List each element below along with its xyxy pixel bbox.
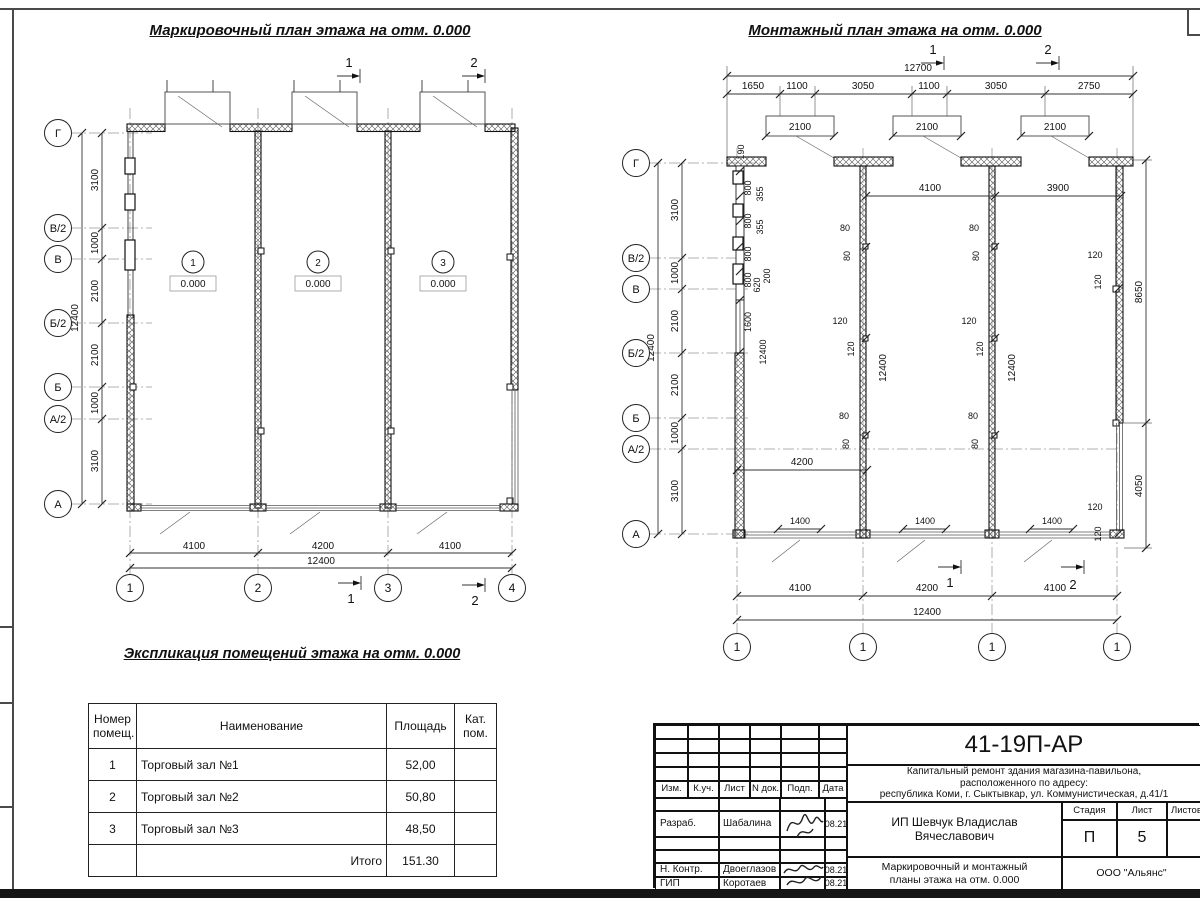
- table-row: 2 Торговый зал №2 50,80: [89, 781, 497, 813]
- inner-dimensions: 4100 3900 4200: [733, 183, 1125, 474]
- dim-label: 12700: [904, 63, 932, 74]
- dim-label: 4200: [791, 457, 814, 468]
- cell-room-number: 2: [89, 781, 137, 813]
- dim-label: 200: [762, 268, 772, 283]
- rooms-table: Номер помещ. Наименование Площадь Кат. п…: [88, 703, 497, 877]
- stage-header: Стадия: [1062, 802, 1117, 820]
- dim-label: 80: [839, 411, 849, 421]
- cell-room-name: Торговый зал №3: [137, 813, 387, 845]
- dim-label: 1400: [915, 516, 935, 526]
- dim-label: 3100: [90, 168, 101, 191]
- right-dimension-chain: 8650 4050: [1124, 156, 1152, 552]
- empty-cell: [655, 798, 719, 811]
- grid-lines: [650, 148, 1117, 633]
- cell-room-name: Торговый зал №2: [137, 781, 387, 813]
- dim-label: 120: [961, 316, 976, 326]
- col-header-category: Кат. пом.: [455, 704, 497, 749]
- dim-label: 190: [736, 144, 746, 159]
- stage-value: П: [1062, 820, 1117, 857]
- th-data: Дата: [819, 781, 847, 798]
- dim-label: 120: [975, 341, 985, 356]
- name-gip: Коротаев: [719, 877, 780, 890]
- date-gip: 08.21: [825, 877, 847, 890]
- axis-label: В/2: [50, 223, 67, 235]
- title-block: Изм. К.уч. Лист N док. Подп. Дата Разраб…: [653, 723, 1199, 888]
- column-label: 2: [255, 581, 262, 595]
- col-header-room-number: Номер помещ.: [89, 704, 137, 749]
- empty-cell: [655, 850, 719, 863]
- date-developer: 08.21: [825, 811, 847, 837]
- total-label: Итого: [137, 845, 387, 877]
- th-kuch: К.уч.: [688, 781, 719, 798]
- bottom-small-dimensions: 1400 1400 1400: [774, 516, 1077, 533]
- dim-label: 12400: [70, 304, 81, 332]
- cell-room-number: 3: [89, 813, 137, 845]
- table-row: 3 Торговый зал №3 48,50: [89, 813, 497, 845]
- date-ncontrol: 08.21: [825, 863, 847, 877]
- frame-tick: [0, 626, 12, 628]
- column-bubbles: 1 2 3 4: [117, 575, 526, 602]
- walls: [727, 157, 1133, 562]
- dim-label: 12400: [913, 607, 941, 618]
- room-number: 2: [315, 258, 321, 269]
- dim-label: 4100: [789, 583, 812, 594]
- dim-label: 120: [1093, 274, 1103, 289]
- dim-label: 2100: [1044, 122, 1067, 133]
- axis-label: А: [54, 499, 62, 511]
- dim-label: 4200: [312, 541, 335, 552]
- column-label: 1: [127, 581, 134, 595]
- total-value: 151.30: [387, 845, 455, 877]
- dim-label: 4050: [1134, 474, 1145, 497]
- section-number: 1: [946, 575, 953, 590]
- th-izm: Изм.: [655, 781, 688, 798]
- room-number: 1: [190, 258, 196, 269]
- dim-label: 355: [755, 186, 765, 201]
- sheets-header: Листов: [1167, 802, 1200, 820]
- sheets-value: [1167, 820, 1200, 857]
- role-ncontrol: Н. Контр.: [655, 863, 719, 877]
- axis-label: В: [54, 254, 61, 266]
- dim-label: 3050: [852, 81, 875, 92]
- dim-label: 2100: [789, 122, 812, 133]
- client-name: ИП Шевчук Владислав Вячеславович: [847, 802, 1062, 857]
- empty-cell: [655, 837, 719, 850]
- room-elevation: 0.000: [430, 279, 455, 290]
- sheet-value: 5: [1117, 820, 1167, 857]
- dim-label: 2100: [670, 309, 681, 332]
- left-dimension-chain: 3100 1000 2100 2100 1000 3100 12400: [70, 129, 106, 508]
- axis-label: В: [632, 284, 639, 296]
- dim-label: 1100: [918, 81, 940, 92]
- column-label: 3: [385, 581, 392, 595]
- cell-empty: [455, 845, 497, 877]
- room-elevation: 0.000: [180, 279, 205, 290]
- column-bubbles: 1 1 1 1: [724, 634, 1131, 661]
- cell-room-area: 48,50: [387, 813, 455, 845]
- dim-label: 4100: [919, 183, 942, 194]
- dim-label: 12400: [1007, 354, 1018, 382]
- bottom-dimension-chain: 4100 4200 4100 12400: [733, 583, 1121, 624]
- section-number: 1: [347, 591, 354, 606]
- dim-label: 3100: [670, 479, 681, 502]
- drawing-title: Маркировочный и монтажный планы этажа на…: [847, 857, 1062, 890]
- axis-label: Б/2: [628, 348, 644, 360]
- dim-label: 4100: [439, 541, 462, 552]
- dim-label: 12400: [878, 354, 889, 382]
- dim-label: 80: [841, 439, 851, 449]
- dim-label: 80: [970, 439, 980, 449]
- room-markers: 1 0.000 2 0.000 3 0.000: [170, 251, 466, 291]
- column-label: 1: [1114, 640, 1121, 654]
- left-plan-title: Маркировочный план этажа на отм. 0.000: [95, 22, 525, 39]
- dim-label: 1000: [90, 391, 101, 414]
- section-marker-2-bottom: 2: [462, 578, 485, 608]
- section-marker-2-top: 2: [1036, 42, 1059, 70]
- dim-label: 1000: [90, 231, 101, 254]
- dim-label: 12400: [307, 556, 335, 567]
- dim-label: 4100: [183, 541, 206, 552]
- frame-left-line: [12, 8, 14, 889]
- company-name: ООО "Альянс": [1062, 857, 1200, 890]
- axis-label: А/2: [628, 444, 645, 456]
- section-number: 1: [345, 55, 352, 70]
- cell-room-area: 50,80: [387, 781, 455, 813]
- name-developer: Шабалина: [719, 811, 780, 837]
- axis-label: А: [632, 529, 640, 541]
- dim-label: 120: [832, 316, 847, 326]
- dim-label: 80: [842, 251, 852, 261]
- top-dimension-chain: 12700 1650 1100 3050 1100 3050 2750: [723, 63, 1137, 157]
- dim-label: 120: [1093, 526, 1103, 541]
- axis-bubbles: Г В/2 В Б/2 Б А/2 А: [45, 120, 72, 518]
- column-label: 1: [860, 640, 867, 654]
- frame-bottom-strip: [0, 889, 1200, 898]
- dim-label: 12400: [758, 339, 768, 364]
- walls: [125, 80, 518, 534]
- table-total-row: Итого 151.30: [89, 845, 497, 877]
- drawing-sheet: { "left_plan": { "title": "Маркировочный…: [0, 0, 1200, 900]
- signature-scribble: [781, 861, 825, 890]
- frame-corner-box: [1187, 8, 1200, 36]
- marking-plan-drawing: 3100 1000 2100 2100 1000 3100 12400 Г В/…: [20, 40, 555, 620]
- dim-label: 120: [1087, 502, 1102, 512]
- dim-label: 2100: [90, 343, 101, 366]
- axis-bubbles: Г В/2 В Б/2 Б А/2 А: [623, 150, 650, 548]
- dim-label: 800: [743, 246, 753, 261]
- dim-label: 1650: [742, 81, 765, 92]
- dim-label: 3100: [670, 198, 681, 221]
- cell-room-area: 52,00: [387, 749, 455, 781]
- role-developer: Разраб.: [655, 811, 719, 837]
- empty-cell: [719, 850, 780, 863]
- dim-label: 355: [755, 219, 765, 234]
- dim-label: 1000: [670, 421, 681, 444]
- room-elevation: 0.000: [305, 279, 330, 290]
- project-description: Капитальный ремонт здания магазина-павил…: [847, 765, 1200, 802]
- axis-label: Г: [55, 128, 61, 140]
- dim-label: 2100: [916, 122, 939, 133]
- bottom-dimension-chain: 4100 4200 4100 12400: [126, 541, 516, 572]
- section-number: 2: [1044, 42, 1051, 57]
- dim-label: 80: [969, 223, 979, 233]
- frame-tick: [0, 806, 12, 808]
- room-number: 3: [440, 258, 446, 269]
- axis-label: Б: [632, 413, 639, 425]
- table-row: 1 Торговый зал №1 52,00: [89, 749, 497, 781]
- dim-label: 4200: [916, 583, 939, 594]
- cell-room-category: [455, 813, 497, 845]
- dim-label: 1000: [670, 261, 681, 284]
- section-number: 2: [1069, 577, 1076, 592]
- section-number: 1: [929, 42, 936, 57]
- col-header-area: Площадь: [387, 704, 455, 749]
- cell-empty: [89, 845, 137, 877]
- dim-label: 3050: [985, 81, 1008, 92]
- th-list: Лист: [719, 781, 750, 798]
- dim-label: 3100: [90, 449, 101, 472]
- dim-label: 4100: [1044, 583, 1067, 594]
- table-header-row: Номер помещ. Наименование Площадь Кат. п…: [89, 704, 497, 749]
- axis-label: А/2: [50, 414, 67, 426]
- dim-label: 620: [752, 277, 762, 292]
- panel-dimensions: 80 80 120 120 80 80 80 80 120 120 80 80 …: [832, 223, 1123, 542]
- dim-label: 1400: [1042, 516, 1062, 526]
- empty-cell: [719, 798, 780, 811]
- frame-top-line: [0, 8, 1200, 10]
- dim-label: 1600: [743, 312, 753, 332]
- dim-label: 120: [1087, 250, 1102, 260]
- th-podp: Подп.: [781, 781, 819, 798]
- dim-label: 800: [743, 180, 753, 195]
- column-label: 4: [509, 581, 516, 595]
- section-marker-2-top: 2: [462, 55, 485, 83]
- empty-cell: [825, 798, 847, 811]
- signature-scribble: [783, 809, 825, 839]
- left-dimension-chain: 3100 1000 2100 2100 1000 3100 12400: [646, 159, 686, 538]
- section-marker-1-bottom: 1: [338, 576, 361, 606]
- door-dimension-boxes: 2100 2100 2100: [762, 116, 1093, 158]
- dim-label: 80: [968, 411, 978, 421]
- axis-label: Г: [633, 158, 639, 170]
- column-label: 1: [989, 640, 996, 654]
- frame-tick: [0, 702, 12, 704]
- name-ncontrol: Двоеглазов: [719, 863, 780, 877]
- dim-label: 1400: [790, 516, 810, 526]
- mounting-plan-drawing: 12700 1650 1100 3050 1100 3050 2750 1 2 …: [615, 38, 1200, 683]
- column-label: 1: [734, 640, 741, 654]
- dim-label: 2100: [90, 279, 101, 302]
- cell-room-category: [455, 781, 497, 813]
- revision-grid: [655, 725, 847, 781]
- section-marker-1-bottom: 1: [938, 560, 961, 590]
- dim-label: 800: [743, 213, 753, 228]
- cell-room-number: 1: [89, 749, 137, 781]
- sheet-header: Лист: [1117, 802, 1167, 820]
- dim-label: 80: [840, 223, 850, 233]
- axis-label: Б/2: [50, 318, 66, 330]
- empty-cell: [825, 837, 847, 850]
- dim-label: 2100: [670, 373, 681, 396]
- th-ndoc: N док.: [750, 781, 781, 798]
- role-gip: ГИП: [655, 877, 719, 890]
- empty-cell: [825, 850, 847, 863]
- cell-room-category: [455, 749, 497, 781]
- section-number: 2: [471, 593, 478, 608]
- dim-label: 120: [846, 341, 856, 356]
- col-header-name: Наименование: [137, 704, 387, 749]
- right-plan-title: Монтажный план этажа на отм. 0.000: [680, 22, 1110, 39]
- section-number: 2: [470, 55, 477, 70]
- axis-label: В/2: [628, 253, 645, 265]
- empty-cell: [719, 837, 780, 850]
- dim-label: 3900: [1047, 183, 1070, 194]
- dim-label: 8650: [1134, 280, 1145, 303]
- dim-label: 2750: [1078, 81, 1101, 92]
- doc-number: 41-19П-АР: [847, 725, 1200, 765]
- section-marker-1-top: 1: [337, 55, 360, 83]
- dim-label: 1100: [786, 81, 808, 92]
- axis-label: Б: [54, 382, 61, 394]
- dim-label: 80: [971, 251, 981, 261]
- cell-room-name: Торговый зал №1: [137, 749, 387, 781]
- table-title: Экспликация помещений этажа на отм. 0.00…: [88, 646, 496, 662]
